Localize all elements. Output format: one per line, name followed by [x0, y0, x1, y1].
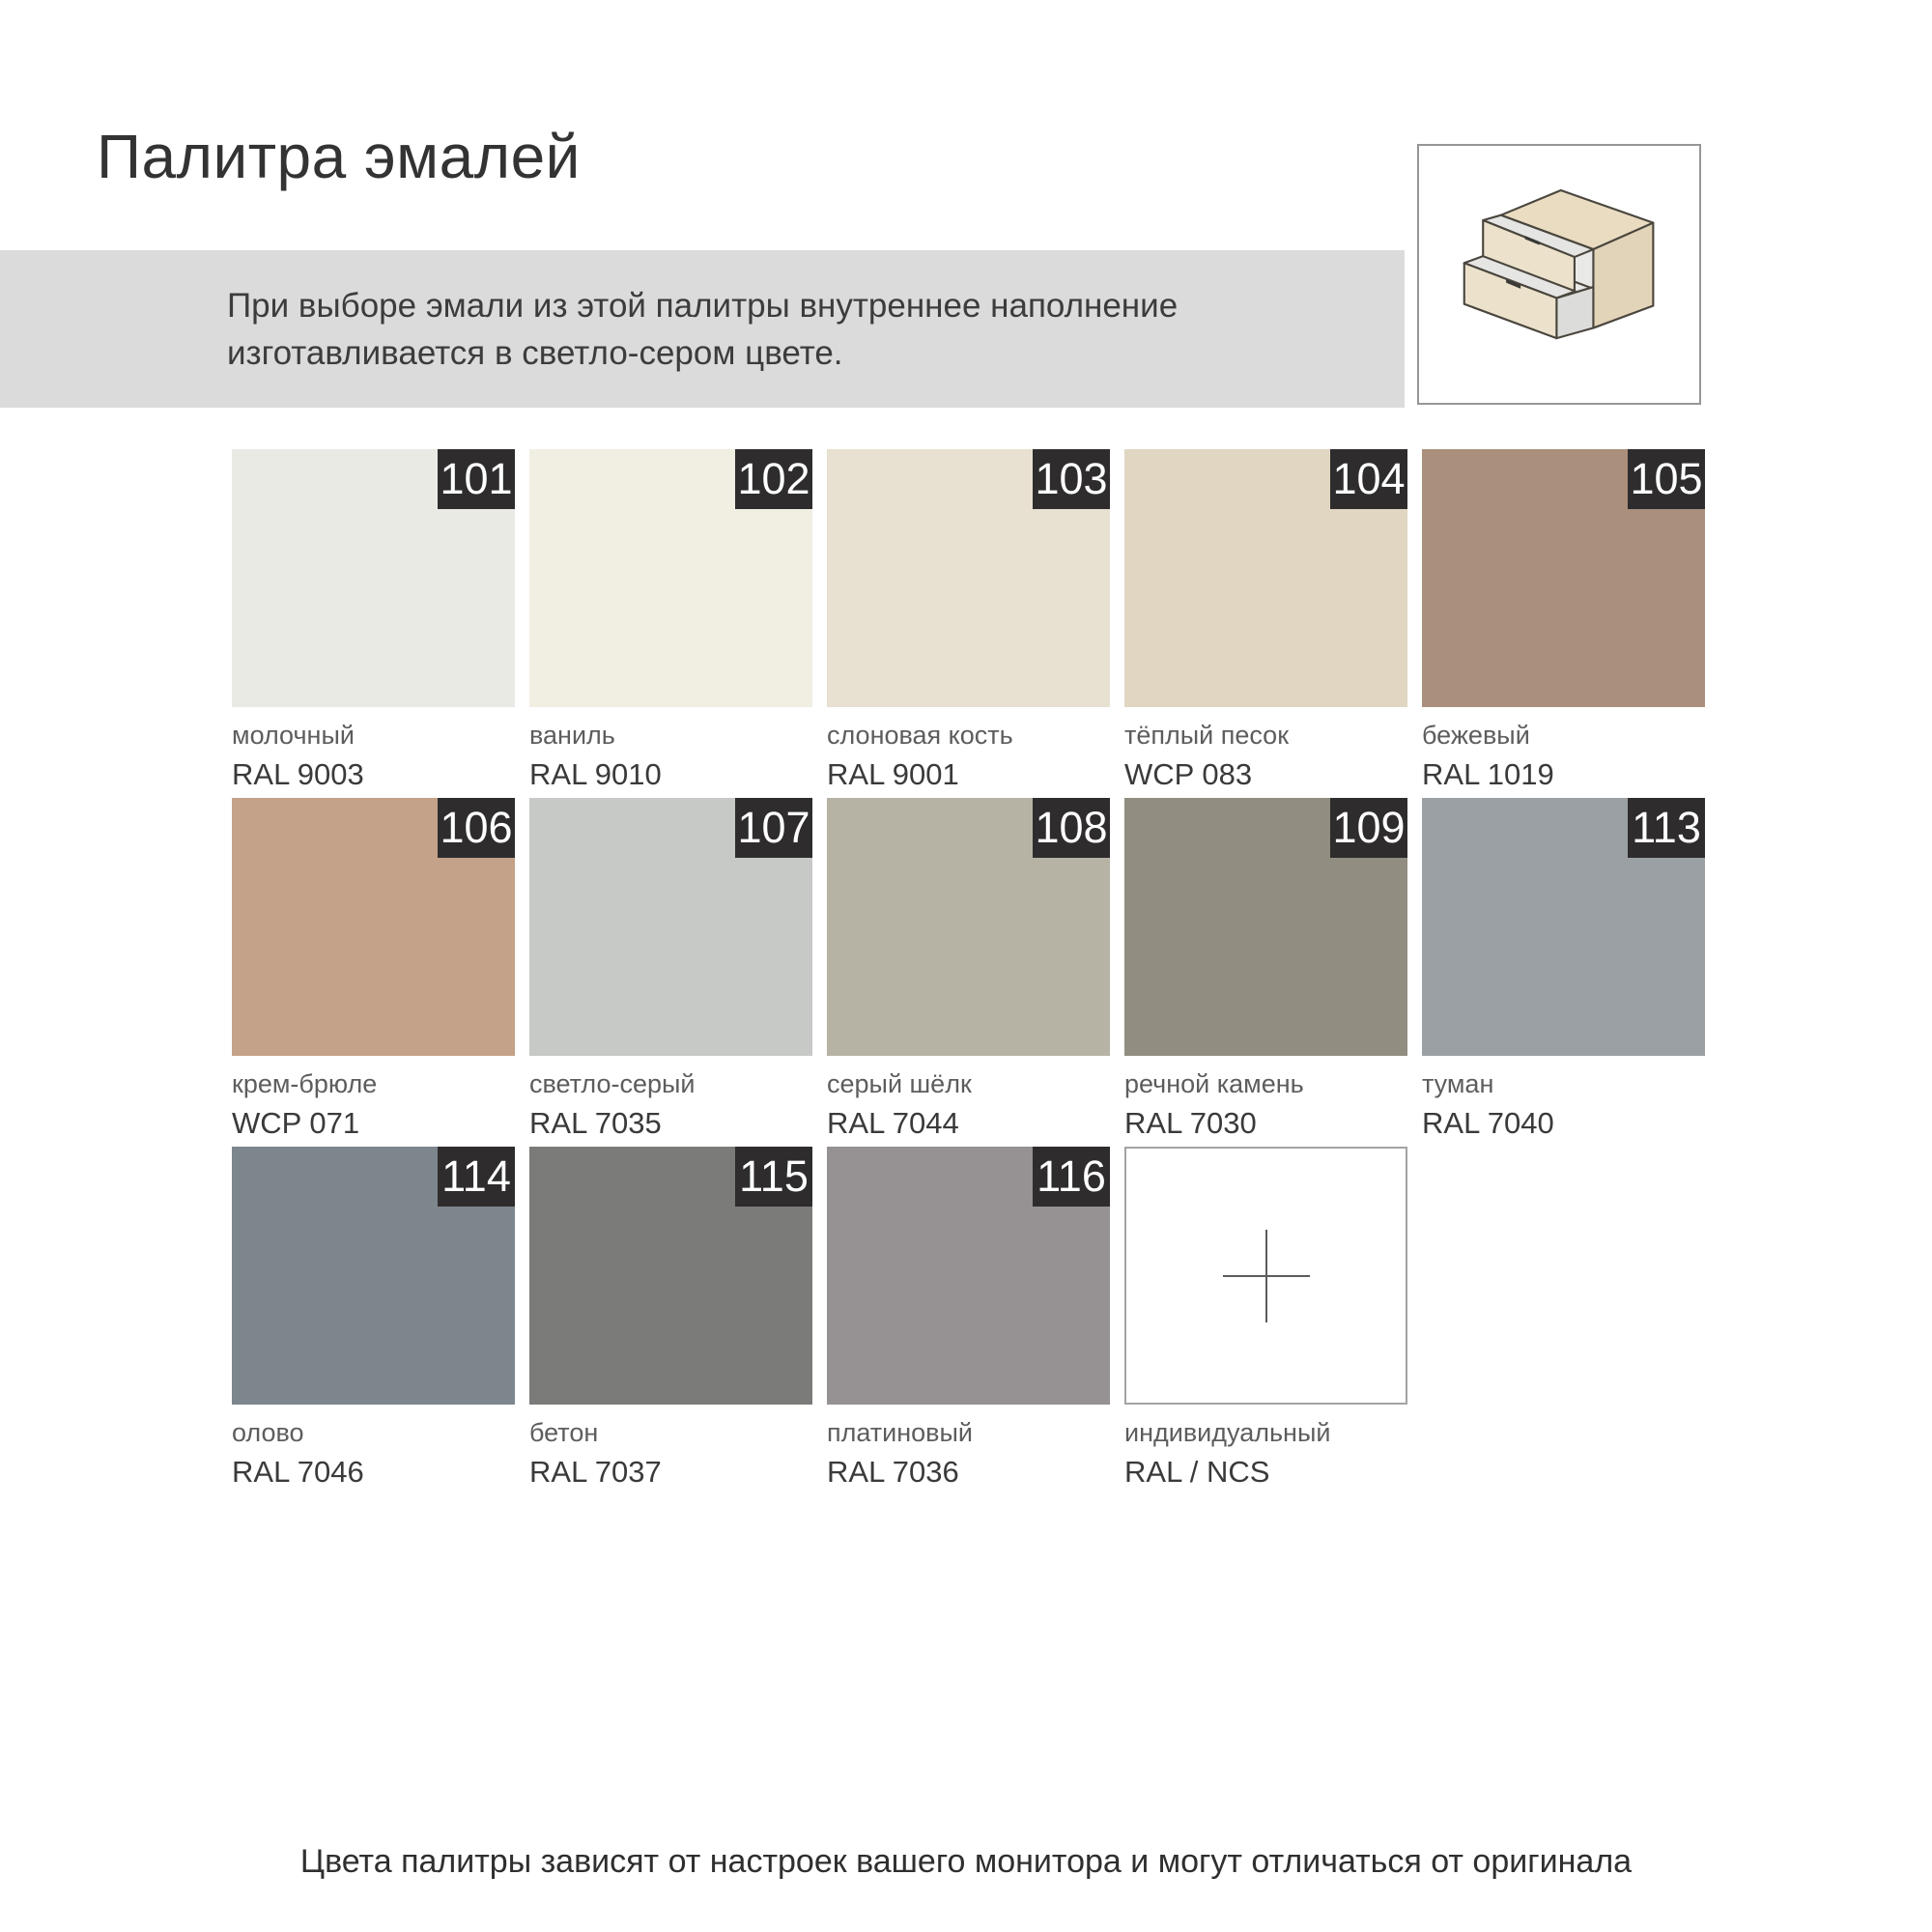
swatch-name: серый шёлк [827, 1068, 1110, 1099]
page-title: Палитра эмалей [97, 121, 581, 192]
note-text: При выборе эмали из этой палитры внутрен… [227, 282, 1241, 377]
swatch-name: речной камень [1124, 1068, 1407, 1099]
palette-swatch-cell: 114 олово RAL 7046 [232, 1147, 515, 1495]
color-swatch-tile[interactable]: 106 [232, 798, 515, 1056]
palette-swatch-cell: 104 тёплый песок WCP 083 [1124, 449, 1407, 798]
swatch-name: олово [232, 1417, 515, 1448]
swatch-number-badge: 106 [438, 798, 515, 858]
swatch-labels: олово RAL 7046 [232, 1417, 515, 1491]
color-swatch-tile[interactable]: 115 [529, 1147, 812, 1405]
swatch-code: RAL 9003 [232, 756, 515, 792]
swatch-code: RAL 7030 [1124, 1105, 1407, 1141]
swatch-labels: ваниль RAL 9010 [529, 720, 812, 793]
swatch-number-badge: 116 [1033, 1147, 1110, 1207]
swatch-labels: бежевый RAL 1019 [1422, 720, 1705, 793]
palette-swatch-cell: 107 светло-серый RAL 7035 [529, 798, 812, 1147]
color-swatch-tile[interactable]: 107 [529, 798, 812, 1056]
color-swatch-tile[interactable]: 104 [1124, 449, 1407, 707]
palette-swatch-cell: 115 бетон RAL 7037 [529, 1147, 812, 1495]
swatch-labels: бетон RAL 7037 [529, 1417, 812, 1491]
drawer-unit-illustration-box [1417, 144, 1701, 405]
palette-swatch-cell: 103 слоновая кость RAL 9001 [827, 449, 1110, 798]
swatch-code: WCP 071 [232, 1105, 515, 1141]
swatch-name: светло-серый [529, 1068, 812, 1099]
palette-swatch-cell: 116 платиновый RAL 7036 [827, 1147, 1110, 1495]
swatch-name: тёплый песок [1124, 720, 1407, 751]
swatch-labels: светло-серый RAL 7035 [529, 1068, 812, 1142]
swatch-labels: слоновая кость RAL 9001 [827, 720, 1110, 793]
swatch-labels: туман RAL 7040 [1422, 1068, 1705, 1142]
swatch-code: RAL 7035 [529, 1105, 812, 1141]
swatch-number-badge: 114 [438, 1147, 515, 1207]
swatch-number-badge: 107 [735, 798, 812, 858]
palette-swatch-cell: 101 молочный RAL 9003 [232, 449, 515, 798]
color-swatch-tile[interactable]: 101 [232, 449, 515, 707]
swatch-labels: речной камень RAL 7030 [1124, 1068, 1407, 1142]
palette-swatch-cell: 102 ваниль RAL 9010 [529, 449, 812, 798]
two-drawer-cabinet-icon [1433, 156, 1686, 393]
swatch-number-badge: 102 [735, 449, 812, 509]
note-bar: При выборе эмали из этой палитры внутрен… [0, 250, 1405, 408]
swatch-name: бетон [529, 1417, 812, 1448]
swatch-code: WCP 083 [1124, 756, 1407, 792]
swatch-number-badge: 115 [735, 1147, 812, 1207]
color-swatch-tile[interactable]: 102 [529, 449, 812, 707]
swatch-labels: тёплый песок WCP 083 [1124, 720, 1407, 793]
palette-swatch-cell: 106 крем-брюле WCP 071 [232, 798, 515, 1147]
swatch-number-badge: 108 [1033, 798, 1110, 858]
swatch-code: RAL 9010 [529, 756, 812, 792]
swatch-labels: серый шёлк RAL 7044 [827, 1068, 1110, 1142]
swatch-labels: индивидуальный RAL / NCS [1124, 1417, 1407, 1491]
swatch-name: бежевый [1422, 720, 1705, 751]
swatch-name: ваниль [529, 720, 812, 751]
color-swatch-tile[interactable]: 116 [827, 1147, 1110, 1405]
swatch-labels: молочный RAL 9003 [232, 720, 515, 793]
swatch-code: RAL 9001 [827, 756, 1110, 792]
footer-disclaimer: Цвета палитры зависят от настроек вашего… [0, 1843, 1932, 1881]
swatch-name: туман [1422, 1068, 1705, 1099]
swatch-number-badge: 105 [1628, 449, 1705, 509]
swatch-labels: крем-брюле WCP 071 [232, 1068, 515, 1142]
palette-swatch-cell: 109 речной камень RAL 7030 [1124, 798, 1407, 1147]
color-swatch-tile[interactable] [1124, 1147, 1407, 1405]
swatch-code: RAL / NCS [1124, 1454, 1407, 1490]
swatch-number-badge: 101 [438, 449, 515, 509]
swatch-code: RAL 7036 [827, 1454, 1110, 1490]
color-swatch-tile[interactable]: 103 [827, 449, 1110, 707]
swatch-number-badge: 109 [1330, 798, 1407, 858]
color-swatch-tile[interactable]: 113 [1422, 798, 1705, 1056]
swatch-number-badge: 113 [1628, 798, 1705, 858]
palette-swatch-cell: 105 бежевый RAL 1019 [1422, 449, 1705, 798]
color-swatch-tile[interactable]: 105 [1422, 449, 1705, 707]
swatch-code: RAL 7044 [827, 1105, 1110, 1141]
palette-grid: 101 молочный RAL 9003 102 ваниль RAL 901… [232, 449, 1705, 1495]
swatch-code: RAL 7040 [1422, 1105, 1705, 1141]
swatch-number-badge: 103 [1033, 449, 1110, 509]
swatch-name: крем-брюле [232, 1068, 515, 1099]
swatch-code: RAL 7046 [232, 1454, 515, 1490]
palette-swatch-cell: 113 туман RAL 7040 [1422, 798, 1705, 1147]
palette-swatch-cell: индивидуальный RAL / NCS [1124, 1147, 1407, 1495]
swatch-name: индивидуальный [1124, 1417, 1407, 1448]
color-swatch-tile[interactable]: 108 [827, 798, 1110, 1056]
swatch-code: RAL 1019 [1422, 756, 1705, 792]
swatch-name: платиновый [827, 1417, 1110, 1448]
color-swatch-tile[interactable]: 109 [1124, 798, 1407, 1056]
swatch-name: слоновая кость [827, 720, 1110, 751]
swatch-labels: платиновый RAL 7036 [827, 1417, 1110, 1491]
swatch-code: RAL 7037 [529, 1454, 812, 1490]
palette-swatch-cell: 108 серый шёлк RAL 7044 [827, 798, 1110, 1147]
swatch-name: молочный [232, 720, 515, 751]
color-swatch-tile[interactable]: 114 [232, 1147, 515, 1405]
swatch-number-badge: 104 [1330, 449, 1407, 509]
